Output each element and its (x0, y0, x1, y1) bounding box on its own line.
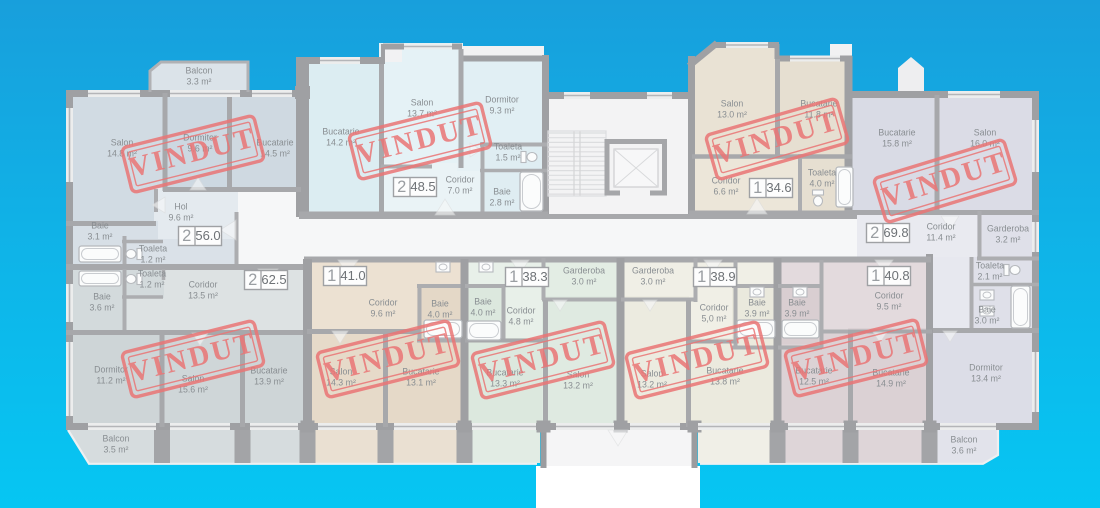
svg-text:Salon: Salon (974, 127, 997, 137)
svg-text:3.0 m²: 3.0 m² (975, 315, 1000, 325)
svg-text:3.0 m²: 3.0 m² (572, 276, 597, 286)
svg-text:Toaleta: Toaleta (494, 141, 522, 151)
svg-text:Coridor: Coridor (446, 174, 475, 184)
svg-text:4.0 m²: 4.0 m² (428, 309, 453, 319)
svg-text:4.8 m²: 4.8 m² (509, 316, 534, 326)
svg-text:Hol: Hol (174, 201, 187, 211)
svg-text:2: 2 (248, 271, 257, 289)
svg-text:Coridor: Coridor (700, 302, 729, 312)
svg-text:3.6 m²: 3.6 m² (90, 302, 115, 312)
svg-text:3.1 m²: 3.1 m² (88, 231, 113, 241)
svg-text:9.6 m²: 9.6 m² (169, 212, 194, 222)
svg-text:13.5 m²: 13.5 m² (188, 290, 218, 300)
svg-text:11.2 m²: 11.2 m² (96, 375, 125, 385)
svg-text:Coridor: Coridor (927, 221, 956, 231)
svg-text:9.5 m²: 9.5 m² (877, 301, 902, 311)
svg-text:34.6: 34.6 (766, 180, 791, 195)
svg-text:Coridor: Coridor (875, 290, 904, 300)
svg-text:3.5 m²: 3.5 m² (104, 444, 129, 454)
svg-text:Bucatarie: Bucatarie (878, 127, 915, 137)
svg-text:38.9: 38.9 (710, 269, 735, 284)
svg-text:Baie: Baie (493, 186, 511, 196)
svg-text:13.9 m²: 13.9 m² (254, 376, 284, 386)
svg-text:1.2 m²: 1.2 m² (141, 254, 166, 264)
svg-text:Baie: Baie (91, 220, 109, 230)
svg-text:Coridor: Coridor (189, 279, 218, 289)
svg-text:15.8 m²: 15.8 m² (882, 138, 912, 148)
svg-text:Dormitor: Dormitor (485, 94, 519, 104)
svg-text:Dormitor: Dormitor (969, 362, 1003, 372)
svg-text:4.0 m²: 4.0 m² (471, 307, 496, 317)
svg-text:1.5 m²: 1.5 m² (496, 152, 521, 162)
svg-text:3.6 m²: 3.6 m² (952, 445, 977, 455)
svg-text:9.6 m²: 9.6 m² (371, 308, 396, 318)
svg-text:3.2 m²: 3.2 m² (996, 234, 1021, 244)
svg-text:13.2 m²: 13.2 m² (563, 380, 593, 390)
svg-text:56.0: 56.0 (195, 228, 220, 243)
svg-text:2: 2 (182, 227, 191, 245)
svg-text:Garderoba: Garderoba (563, 265, 605, 275)
svg-text:Baie: Baie (788, 297, 806, 307)
svg-text:48.5: 48.5 (410, 179, 435, 194)
svg-text:14.9 m²: 14.9 m² (876, 378, 906, 388)
svg-text:Salon: Salon (721, 98, 744, 108)
svg-text:Toaleta: Toaleta (139, 243, 167, 253)
svg-text:Baie: Baie (93, 291, 111, 301)
svg-text:Baie: Baie (978, 304, 996, 314)
svg-text:1.2 m²: 1.2 m² (140, 279, 165, 289)
svg-text:Baie: Baie (431, 298, 449, 308)
svg-text:1: 1 (509, 268, 518, 286)
svg-text:13.0 m²: 13.0 m² (717, 109, 747, 119)
svg-text:9.3 m²: 9.3 m² (490, 105, 515, 115)
svg-text:5,0 m²: 5,0 m² (702, 313, 727, 323)
svg-text:Garderoba: Garderoba (987, 223, 1029, 233)
svg-text:3.3 m²: 3.3 m² (187, 76, 212, 86)
svg-text:69.8: 69.8 (883, 225, 908, 240)
svg-text:Coridor: Coridor (507, 305, 536, 315)
svg-text:7.0 m²: 7.0 m² (448, 185, 473, 195)
svg-text:Coridor: Coridor (369, 297, 398, 307)
svg-text:3.9 m²: 3.9 m² (785, 308, 810, 318)
svg-text:1: 1 (327, 267, 336, 285)
svg-text:Garderoba: Garderoba (632, 265, 674, 275)
svg-text:2: 2 (397, 178, 406, 196)
svg-text:6.6 m²: 6.6 m² (714, 186, 739, 196)
svg-text:Dormitor: Dormitor (94, 364, 128, 374)
svg-text:3.0 m²: 3.0 m² (641, 276, 666, 286)
svg-text:Balcon: Balcon (103, 433, 130, 443)
svg-text:2.1 m²: 2.1 m² (978, 271, 1003, 281)
svg-text:62.5: 62.5 (261, 272, 286, 287)
svg-text:Balcon: Balcon (951, 434, 978, 444)
svg-text:2.8 m²: 2.8 m² (490, 197, 515, 207)
svg-text:3.9 m²: 3.9 m² (745, 308, 770, 318)
svg-text:13.4 m²: 13.4 m² (971, 373, 1001, 383)
svg-text:Baie: Baie (748, 297, 766, 307)
svg-text:38.3: 38.3 (522, 269, 547, 284)
svg-text:Toaleta: Toaleta (976, 260, 1004, 270)
svg-text:2: 2 (870, 224, 879, 242)
svg-text:Toaleta: Toaleta (138, 268, 166, 278)
svg-text:Baie: Baie (474, 296, 492, 306)
svg-text:1: 1 (697, 268, 706, 286)
svg-text:Salon: Salon (411, 97, 434, 107)
svg-text:41.0: 41.0 (340, 268, 365, 283)
svg-text:11.4 m²: 11.4 m² (926, 232, 955, 242)
svg-text:1: 1 (753, 179, 762, 197)
svg-text:Toaleta: Toaleta (808, 167, 836, 177)
svg-text:Balcon: Balcon (186, 65, 213, 75)
svg-text:4.0 m²: 4.0 m² (810, 178, 835, 188)
svg-text:1: 1 (871, 267, 880, 285)
svg-text:40.8: 40.8 (884, 268, 909, 283)
